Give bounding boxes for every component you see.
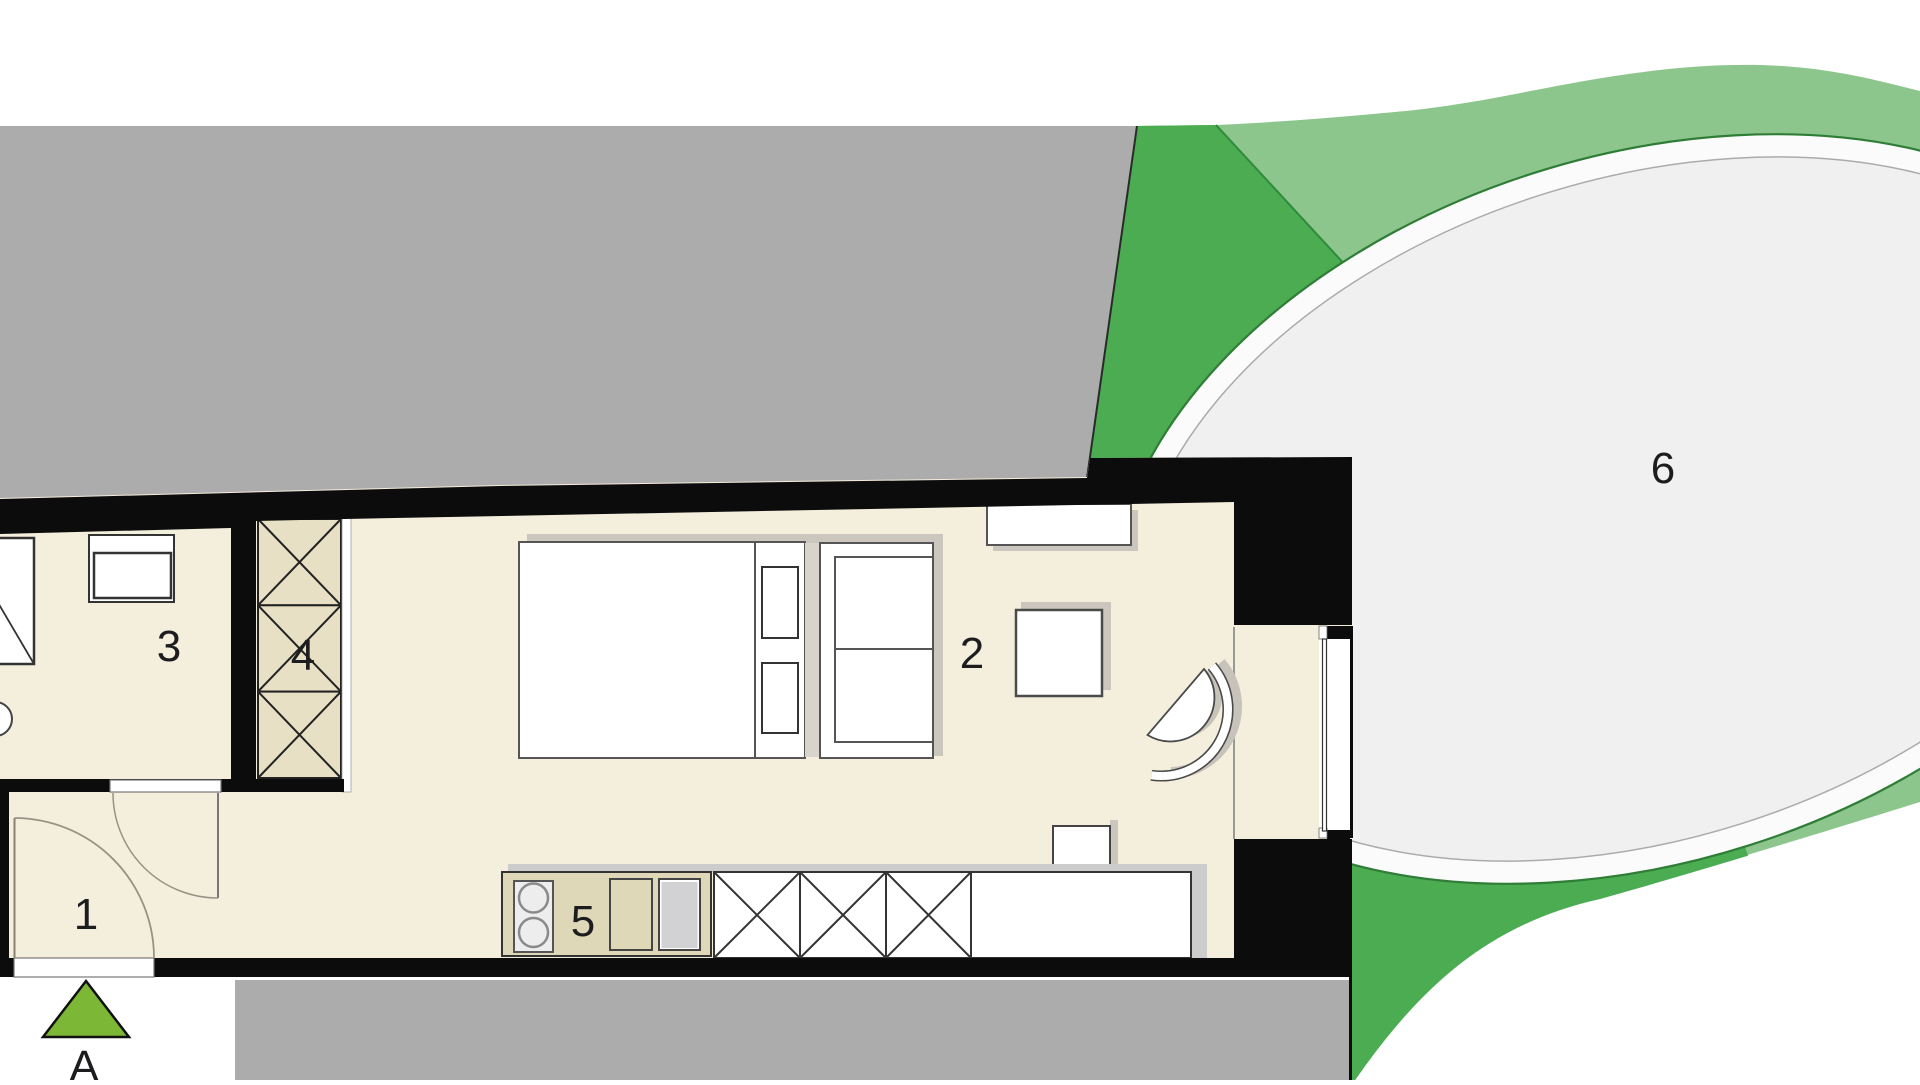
svg-text:5: 5 <box>571 897 595 946</box>
svg-text:6: 6 <box>1651 444 1675 493</box>
svg-text:A: A <box>69 1042 99 1080</box>
svg-text:3: 3 <box>157 622 181 671</box>
svg-text:4: 4 <box>291 631 315 680</box>
svg-text:1: 1 <box>74 890 98 939</box>
svg-text:2: 2 <box>960 629 984 678</box>
